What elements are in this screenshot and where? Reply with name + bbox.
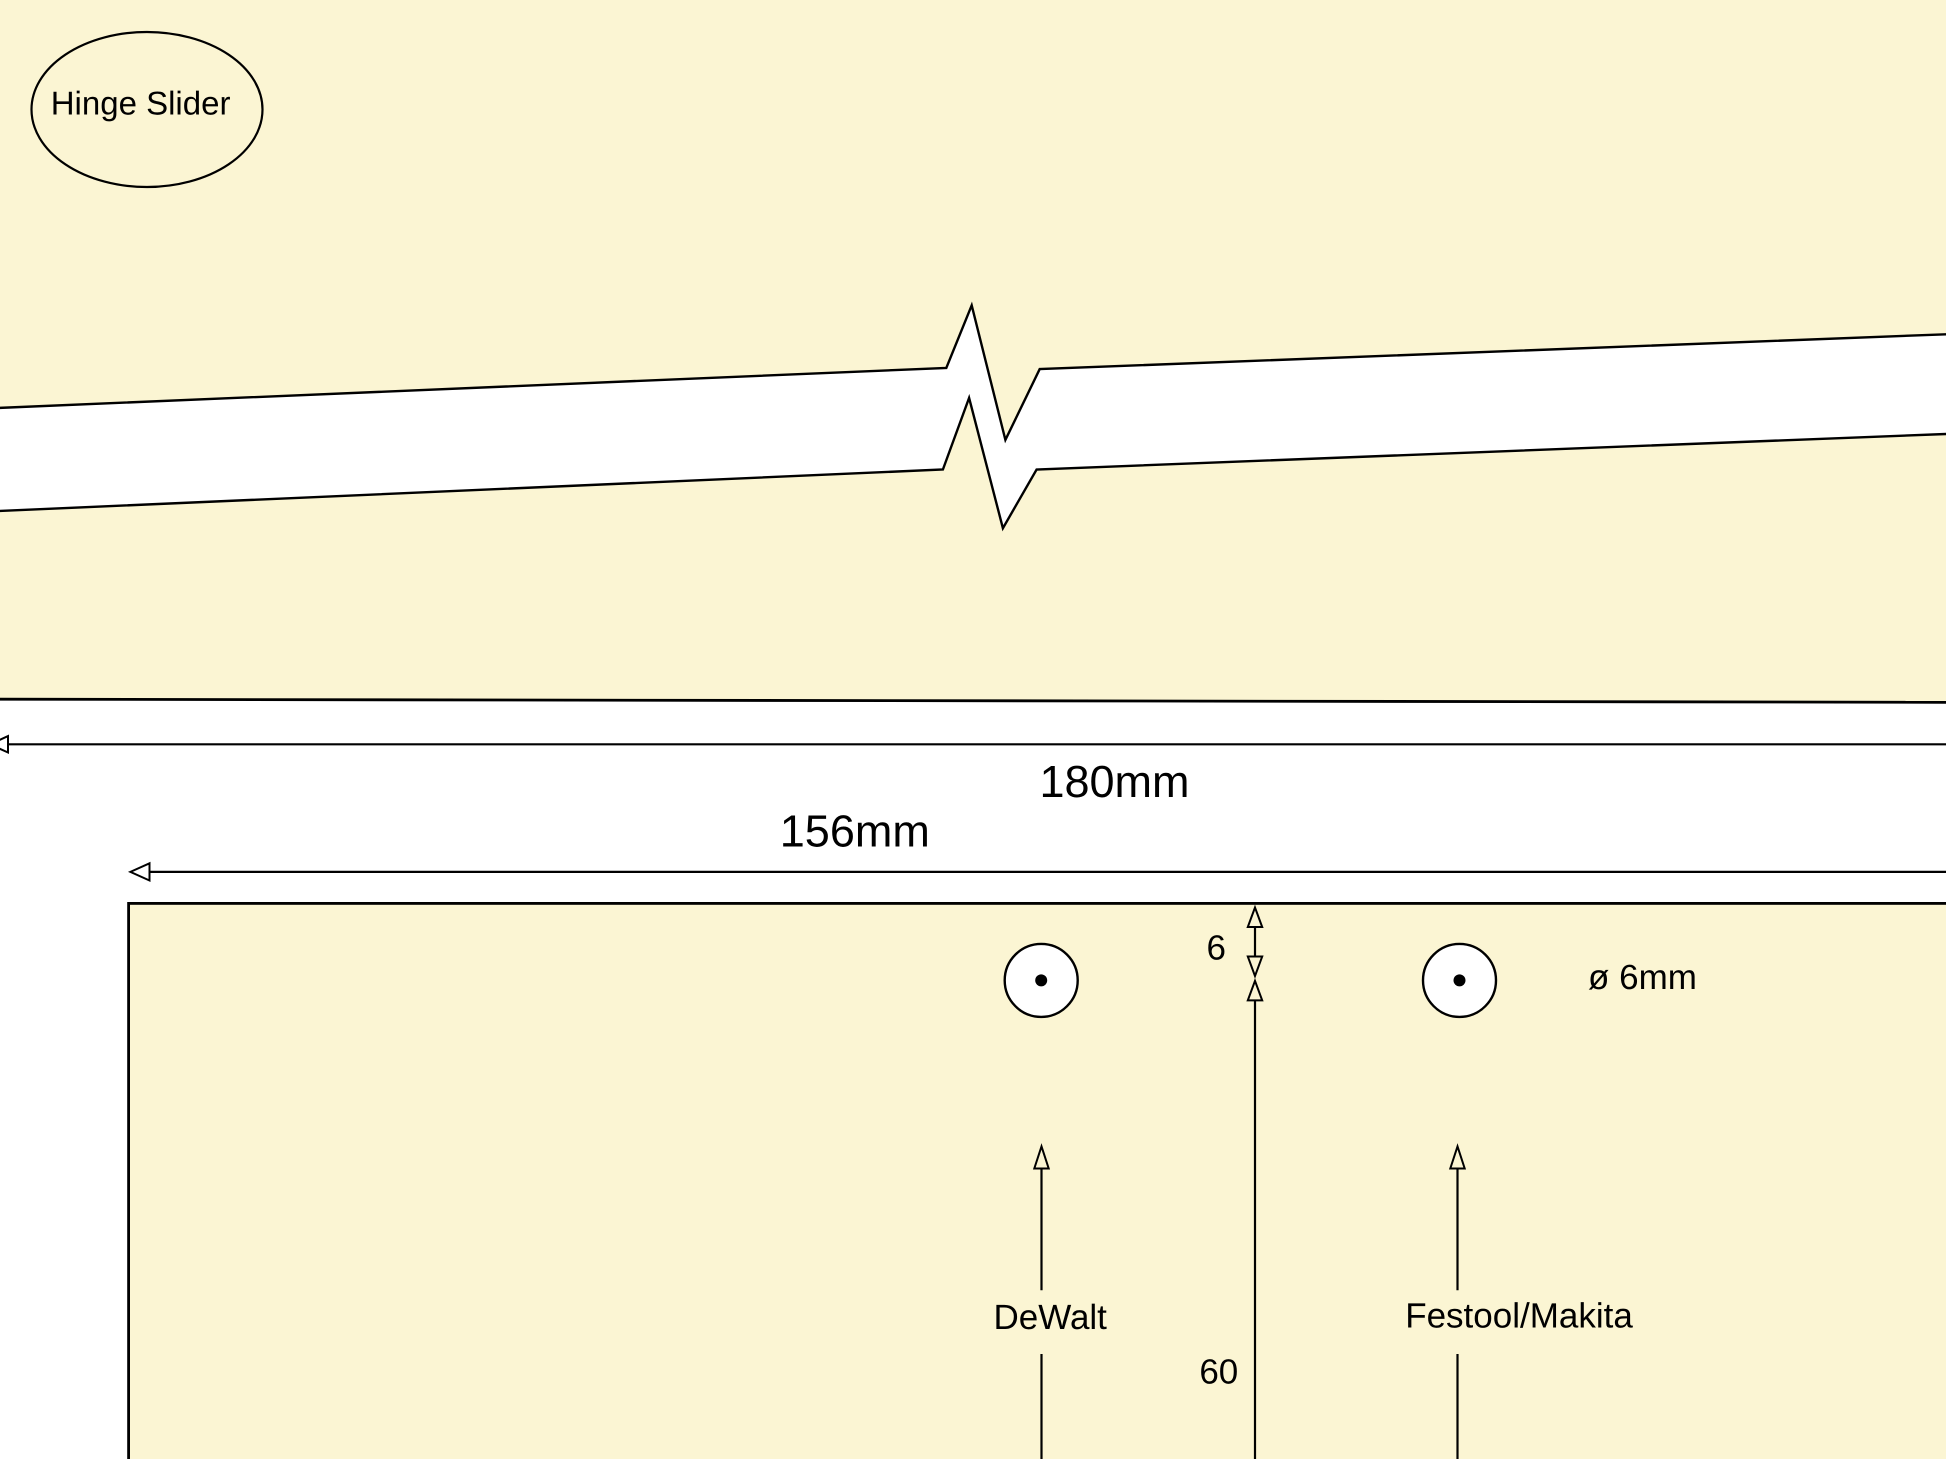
- svg-text:DeWalt: DeWalt: [993, 1298, 1107, 1337]
- svg-text:Festool/Makita: Festool/Makita: [1405, 1297, 1633, 1336]
- svg-text:180mm: 180mm: [1039, 756, 1189, 807]
- svg-text:60: 60: [1199, 1353, 1238, 1392]
- svg-text:Hinge Slider: Hinge Slider: [51, 85, 231, 122]
- svg-text:ø 6mm: ø 6mm: [1588, 958, 1697, 997]
- svg-text:6: 6: [1207, 928, 1226, 967]
- svg-text:156mm: 156mm: [780, 806, 930, 857]
